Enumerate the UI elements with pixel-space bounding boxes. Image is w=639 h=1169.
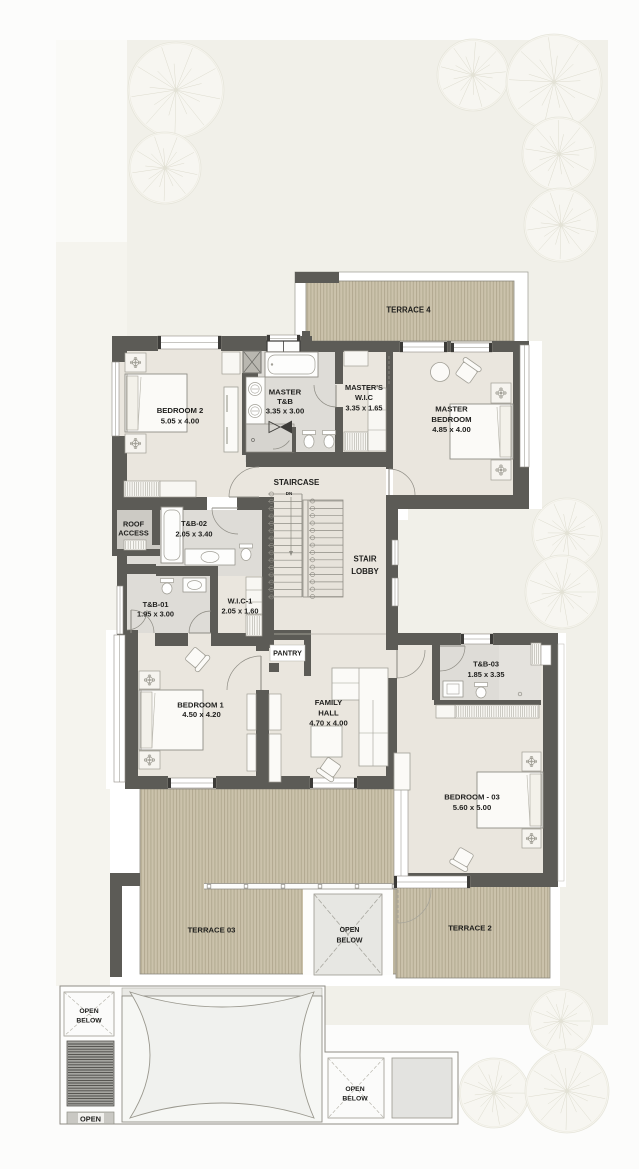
svg-text:BEDROOM: BEDROOM xyxy=(431,415,471,424)
svg-text:OPEN: OPEN xyxy=(345,1086,364,1093)
svg-text:BELOW: BELOW xyxy=(336,938,362,945)
svg-text:BELOW: BELOW xyxy=(342,1096,368,1103)
svg-text:MASTER'S: MASTER'S xyxy=(345,383,383,392)
svg-text:1.95 x 3.00: 1.95 x 3.00 xyxy=(137,610,174,619)
svg-text:ROOF: ROOF xyxy=(123,520,145,529)
svg-text:W.I.C-1: W.I.C-1 xyxy=(228,597,253,606)
svg-text:DN: DN xyxy=(286,491,293,496)
svg-text:STAIRCASE: STAIRCASE xyxy=(274,478,320,487)
svg-text:1.85 x 3.35: 1.85 x 3.35 xyxy=(468,670,505,679)
svg-text:OPEN: OPEN xyxy=(340,927,360,934)
svg-text:T&B-02: T&B-02 xyxy=(181,519,207,528)
svg-text:4.70 x 4.00: 4.70 x 4.00 xyxy=(309,719,347,728)
svg-text:T&B-03: T&B-03 xyxy=(473,660,499,669)
svg-text:4.85 x 4.00: 4.85 x 4.00 xyxy=(432,425,470,434)
svg-text:MASTER: MASTER xyxy=(269,388,302,397)
svg-text:LOBBY: LOBBY xyxy=(351,567,379,576)
svg-text:3.35 x 1.65: 3.35 x 1.65 xyxy=(346,404,383,413)
svg-text:MASTER: MASTER xyxy=(435,405,468,414)
svg-text:4.50 x 4.20: 4.50 x 4.20 xyxy=(182,710,220,719)
svg-text:5.05 x 4.00: 5.05 x 4.00 xyxy=(161,417,199,426)
svg-text:HALL: HALL xyxy=(318,709,339,718)
svg-text:5.60 x 5.00: 5.60 x 5.00 xyxy=(453,803,491,812)
svg-text:W.I.C: W.I.C xyxy=(355,393,374,402)
svg-text:2.05 x 3.40: 2.05 x 3.40 xyxy=(176,530,213,539)
svg-text:BELOW: BELOW xyxy=(76,1018,102,1025)
svg-text:ACCESS: ACCESS xyxy=(118,529,149,538)
svg-text:OPEN: OPEN xyxy=(79,1008,98,1015)
svg-text:FAMILY: FAMILY xyxy=(315,698,342,707)
svg-text:2.05 x 1.60: 2.05 x 1.60 xyxy=(222,607,259,616)
svg-text:T&B-01: T&B-01 xyxy=(143,600,169,609)
svg-text:TERRACE 03: TERRACE 03 xyxy=(188,926,236,935)
svg-text:3.35 x 3.00: 3.35 x 3.00 xyxy=(266,407,304,416)
svg-text:BEDROOM 1: BEDROOM 1 xyxy=(177,701,224,710)
svg-text:BEDROOM 2: BEDROOM 2 xyxy=(157,406,204,415)
svg-text:BEDROOM - 03: BEDROOM - 03 xyxy=(444,793,500,802)
svg-text:PANTRY: PANTRY xyxy=(273,649,302,658)
svg-text:T&B: T&B xyxy=(277,397,293,406)
svg-text:TERRACE 4: TERRACE 4 xyxy=(386,306,431,315)
svg-text:OPEN: OPEN xyxy=(80,1115,101,1124)
svg-text:STAIR: STAIR xyxy=(353,555,376,564)
svg-text:TERRACE 2: TERRACE 2 xyxy=(448,924,492,933)
